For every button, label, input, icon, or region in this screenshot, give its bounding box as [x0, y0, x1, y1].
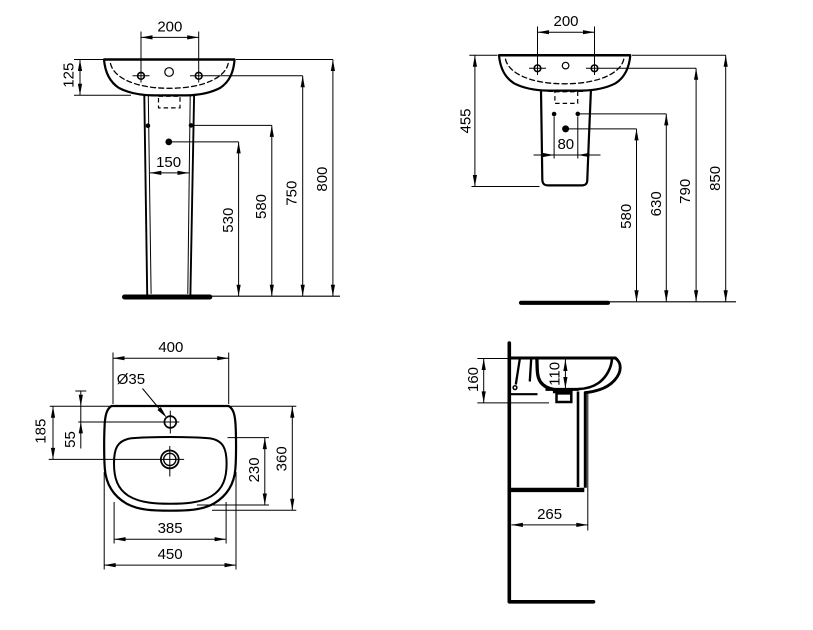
svg-text:530: 530 [220, 208, 237, 233]
svg-text:230: 230 [246, 457, 263, 482]
svg-text:Ø35: Ø35 [117, 371, 145, 388]
svg-text:630: 630 [648, 191, 665, 216]
svg-text:800: 800 [314, 167, 331, 192]
svg-text:55: 55 [62, 431, 79, 448]
svg-text:450: 450 [158, 546, 183, 563]
svg-text:850: 850 [707, 166, 724, 191]
svg-text:200: 200 [157, 18, 182, 35]
svg-text:580: 580 [618, 204, 635, 229]
svg-text:80: 80 [557, 136, 574, 153]
svg-text:110: 110 [546, 362, 563, 386]
svg-text:125: 125 [60, 63, 77, 88]
svg-text:185: 185 [33, 419, 50, 444]
svg-text:160: 160 [465, 367, 482, 392]
svg-text:385: 385 [158, 520, 183, 537]
svg-text:400: 400 [158, 339, 183, 356]
svg-text:750: 750 [284, 181, 301, 206]
svg-text:790: 790 [677, 179, 694, 204]
svg-text:150: 150 [156, 154, 181, 171]
svg-text:200: 200 [553, 13, 578, 30]
svg-text:265: 265 [537, 506, 562, 523]
svg-text:360: 360 [273, 446, 290, 471]
svg-text:580: 580 [253, 194, 270, 219]
svg-text:455: 455 [458, 108, 475, 133]
